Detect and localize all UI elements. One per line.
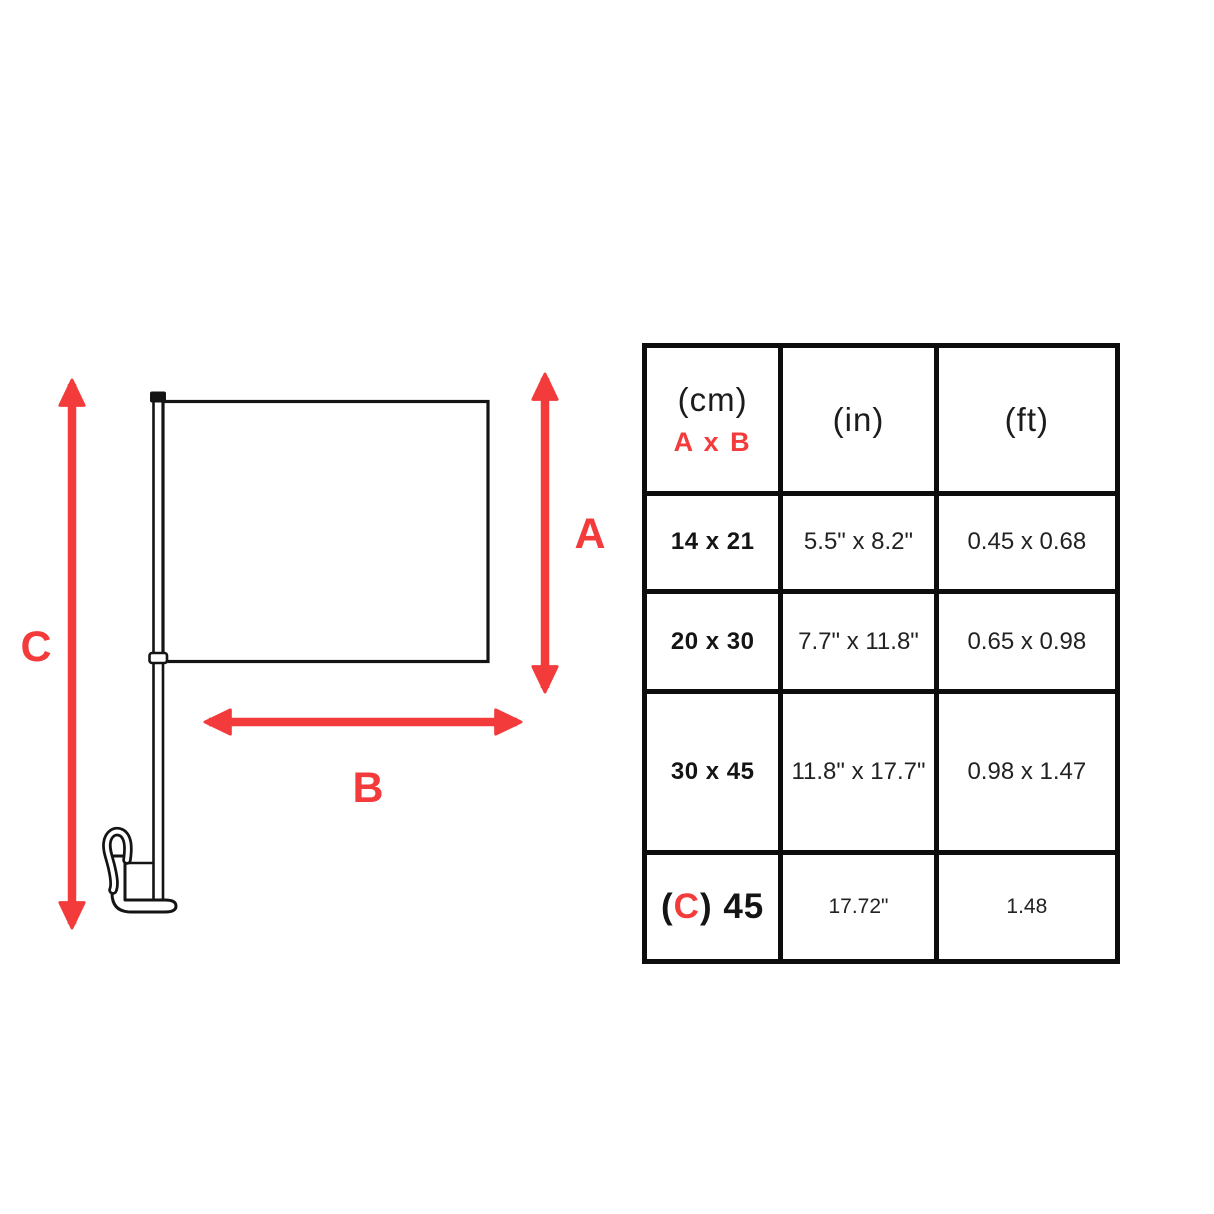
label-b: B	[352, 764, 383, 812]
pole-collar	[150, 653, 168, 663]
row-4-ft-value: 1.48	[1006, 894, 1047, 920]
header-cell-cm: (cm) A x B	[647, 348, 778, 491]
table-row-2-cm: 20 x 30	[647, 594, 778, 689]
pole-cap	[150, 392, 166, 403]
table-row-3-in: 11.8" x 17.7"	[783, 694, 933, 850]
label-a: A	[574, 510, 605, 558]
row-2-in-value: 7.7" x 11.8"	[798, 627, 919, 657]
row-1-ft-value: 0.45 x 0.68	[967, 527, 1086, 557]
row-2-ft-value: 0.65 x 0.98	[967, 627, 1086, 657]
header-ft-unit: (ft)	[1005, 399, 1049, 440]
table-row-4-ft: 1.48	[939, 855, 1115, 959]
table-row-1-ft: 0.45 x 0.68	[939, 496, 1115, 589]
table-row-2-in: 7.7" x 11.8"	[783, 594, 933, 689]
row-2-cm-value: 20 x 30	[671, 627, 755, 657]
table-row-4-in: 17.72"	[783, 855, 933, 959]
header-cm-unit: (cm)	[678, 379, 748, 420]
row-3-cm-value: 30 x 45	[671, 757, 755, 787]
flag-rect	[163, 402, 488, 662]
row-4-c-letter: C	[674, 887, 700, 926]
table-row-1-in: 5.5" x 8.2"	[783, 496, 933, 589]
clip-base	[112, 856, 176, 912]
table-row-1-cm: 14 x 21	[647, 496, 778, 589]
header-axb: A x B	[674, 426, 752, 460]
table-row-2-ft: 0.65 x 0.98	[939, 594, 1115, 689]
label-c: C	[20, 623, 51, 671]
header-in-unit: (in)	[833, 399, 885, 440]
header-cell-in: (in)	[783, 348, 933, 491]
table-row-3-ft: 0.98 x 1.47	[939, 694, 1115, 850]
header-cell-ft: (ft)	[939, 348, 1115, 491]
table-row-3-cm: 30 x 45	[647, 694, 778, 850]
row-4-cm-rest: ) 45	[700, 887, 764, 926]
table-row-4-cm: (C) 45	[647, 855, 778, 959]
car-flag-size-infographic: C A B (cm) A x B (in) (ft) 14 x 21 5.5" …	[0, 0, 1214, 1214]
row-4-cm-value: (C) 45	[661, 885, 764, 929]
row-3-ft-value: 0.98 x 1.47	[967, 757, 1086, 787]
row-4-in-value: 17.72"	[828, 894, 888, 920]
row-1-in-value: 5.5" x 8.2"	[804, 527, 913, 557]
row-4-paren-open: (	[661, 887, 674, 926]
row-3-in-value: 11.8" x 17.7"	[791, 757, 925, 787]
size-table: (cm) A x B (in) (ft) 14 x 21 5.5" x 8.2"…	[642, 343, 1120, 964]
row-1-cm-value: 14 x 21	[671, 527, 755, 557]
